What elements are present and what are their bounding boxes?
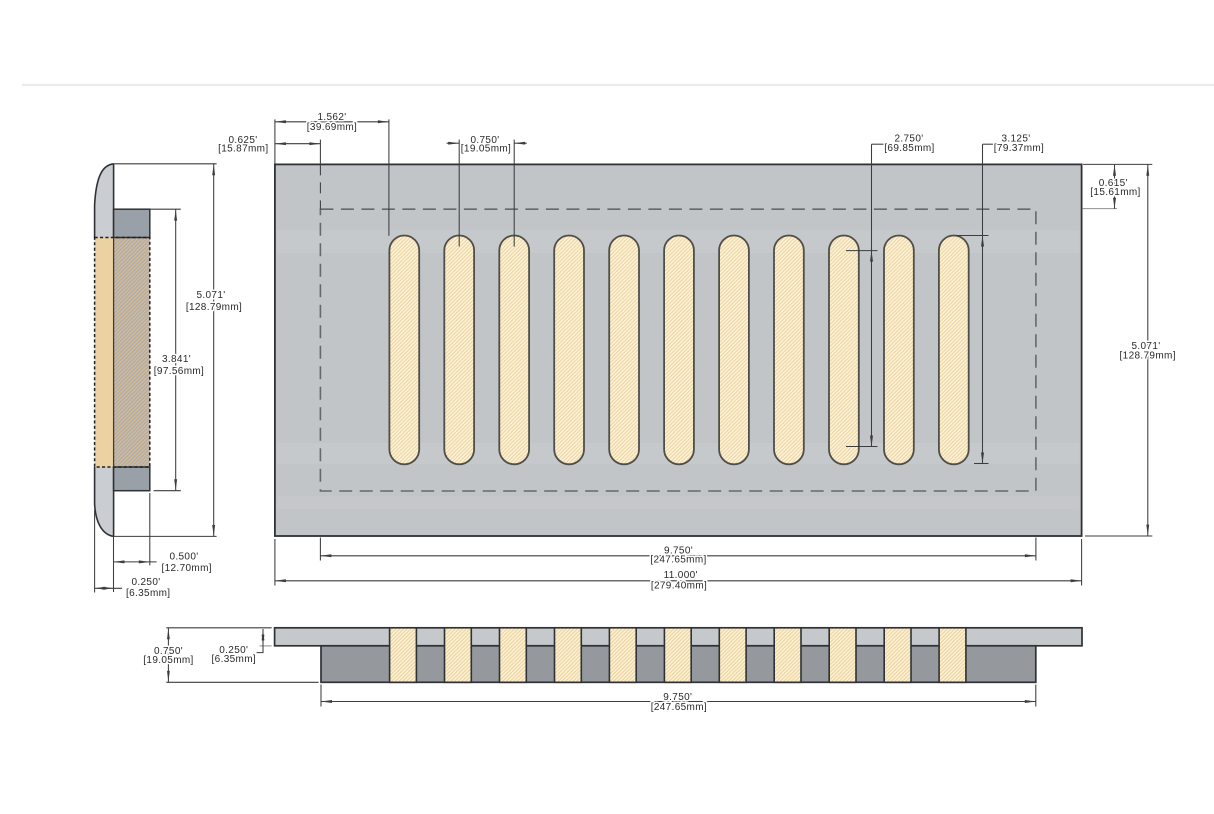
svg-text:[15.87mm]: [15.87mm] xyxy=(218,143,268,154)
svg-text:[247.65mm]: [247.65mm] xyxy=(650,555,706,566)
svg-text:[128.79mm]: [128.79mm] xyxy=(186,302,242,313)
svg-text:[19.05mm]: [19.05mm] xyxy=(143,655,193,666)
svg-text:[97.56mm]: [97.56mm] xyxy=(154,366,204,377)
svg-text:[128.79mm]: [128.79mm] xyxy=(1120,350,1176,361)
svg-text:[6.35mm]: [6.35mm] xyxy=(212,654,256,665)
svg-text:0.500': 0.500' xyxy=(169,552,198,563)
svg-text:[6.35mm]: [6.35mm] xyxy=(126,588,170,599)
svg-text:[69.85mm]: [69.85mm] xyxy=(884,143,934,154)
svg-text:5.071': 5.071' xyxy=(196,290,225,301)
svg-text:[15.61mm]: [15.61mm] xyxy=(1090,187,1140,198)
svg-text:[279.40mm]: [279.40mm] xyxy=(651,581,707,592)
svg-text:11.000': 11.000' xyxy=(664,570,698,581)
svg-text:[19.05mm]: [19.05mm] xyxy=(461,144,511,155)
svg-text:3.841': 3.841' xyxy=(162,354,191,365)
svg-text:[79.37mm]: [79.37mm] xyxy=(994,143,1044,154)
svg-text:[39.69mm]: [39.69mm] xyxy=(307,122,357,133)
svg-text:[247.65mm]: [247.65mm] xyxy=(651,702,707,713)
svg-text:[12.70mm]: [12.70mm] xyxy=(161,563,211,574)
svg-text:0.250': 0.250' xyxy=(131,577,160,588)
